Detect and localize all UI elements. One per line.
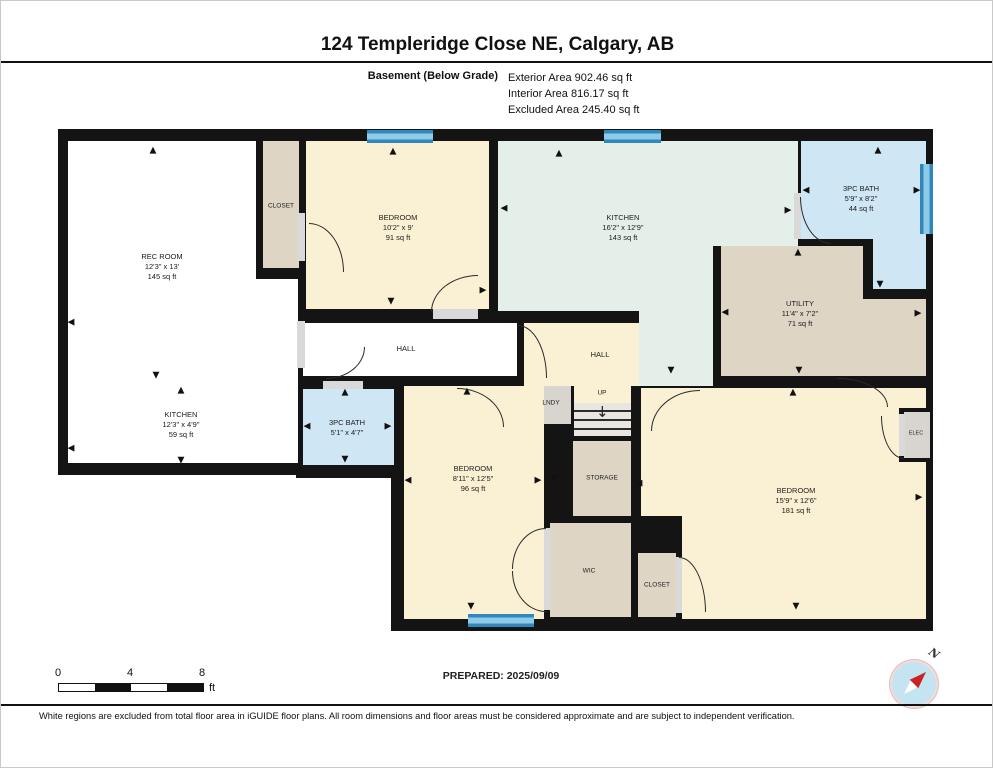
- scale-tick-4: 4: [127, 667, 133, 679]
- floor-plan: ↓: [1, 1, 993, 768]
- room-label-bath-bottom: 3PC BATH5'1" x 4'7": [329, 418, 365, 438]
- room-label-hall-stairs: HALL: [591, 350, 610, 360]
- room-label-closet-bottom: CLOSET: [644, 582, 670, 591]
- stairs-direction-arrow-icon: ↓: [596, 405, 609, 420]
- floorplan-page: 124 Templeridge Close NE, Calgary, AB Ba…: [0, 0, 993, 768]
- room-label-hall-main: HALL: [397, 344, 416, 354]
- room-label-closet-top: CLOSET: [268, 203, 294, 212]
- room-label-utility: UTILITY11'4" x 7'2"71 sq ft: [782, 299, 818, 329]
- door-opening: [297, 321, 305, 368]
- room-label-wic: WIC: [583, 568, 596, 577]
- window: [367, 130, 433, 143]
- room-label-bedroom-top: BEDROOM10'2" x 9'91 sq ft: [379, 213, 418, 243]
- room-label-storage: STORAGE: [586, 475, 618, 484]
- room-label-up: UP: [597, 390, 606, 399]
- room-rec-room-ext: [256, 279, 298, 463]
- scale-segment: [95, 684, 131, 691]
- scale-unit: ft: [209, 682, 215, 694]
- room-label-rec-room: REC ROOM12'3" x 13'145 sq ft: [141, 252, 182, 282]
- room-label-lndy: LNDY: [542, 400, 559, 409]
- prepared-date: PREPARED: 2025/09/09: [381, 670, 621, 682]
- room-label-bath-top: 3PC BATH5'9" x 8'2"44 sq ft: [843, 184, 879, 214]
- door-opening: [323, 381, 363, 389]
- door-opening: [297, 213, 305, 261]
- scale-segment: [131, 684, 167, 691]
- scale-tick-8: 8: [199, 667, 205, 679]
- room-label-bedroom-left: BEDROOM8'11" x 12'5"96 sq ft: [453, 464, 494, 494]
- scale-segment: [167, 684, 203, 691]
- room-bath-top: [873, 141, 926, 289]
- room-label-kitchen: KITCHEN16'2" x 12'9"143 sq ft: [602, 213, 643, 243]
- room-label-elec: ELEC: [909, 430, 923, 437]
- room-label-rec-kitchen: KITCHEN12'3" x 4'9"59 sq ft: [163, 410, 200, 440]
- scale-segment: [59, 684, 95, 691]
- scale-tick-0: 0: [55, 667, 61, 679]
- scale-bar: [58, 683, 204, 692]
- room-kitchen-passage: [639, 311, 713, 386]
- compass-icon: [890, 660, 938, 708]
- window: [468, 614, 534, 627]
- disclaimer-text: White regions are excluded from total fl…: [39, 711, 795, 721]
- window: [604, 130, 661, 143]
- window: [920, 164, 933, 234]
- room-label-bedroom-right: BEDROOM15'9" x 12'6"181 sq ft: [775, 486, 816, 516]
- footer-divider: [1, 704, 993, 706]
